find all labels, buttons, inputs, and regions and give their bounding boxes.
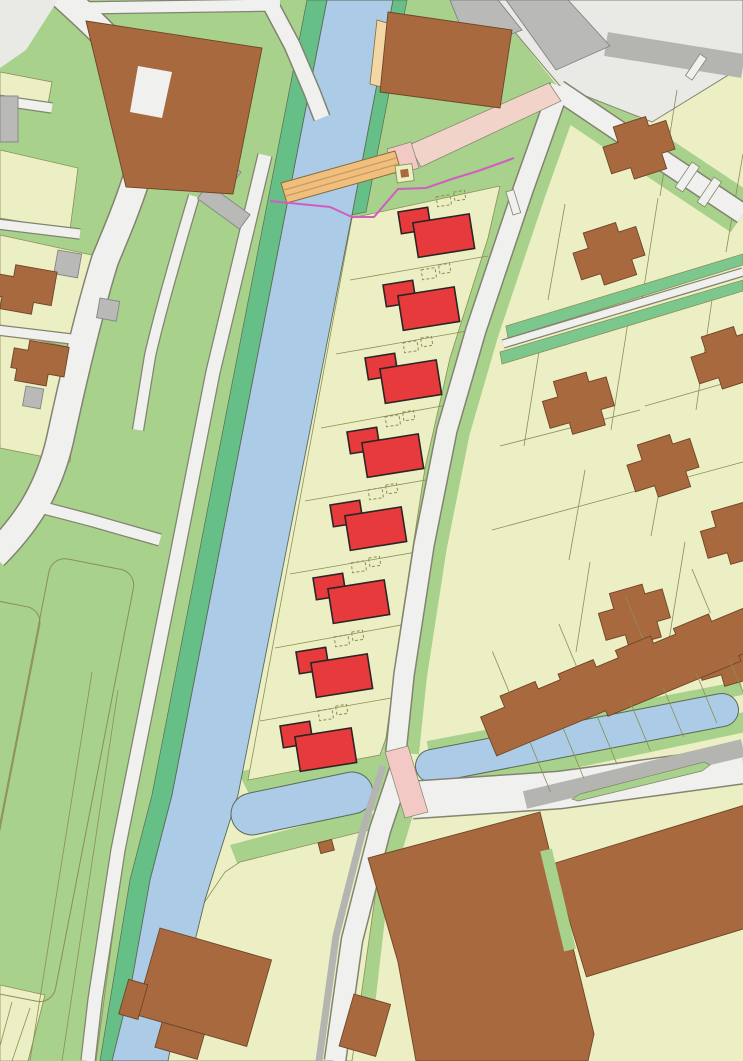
shed: [54, 250, 82, 278]
top-road: [78, 5, 280, 8]
structure-shed: [400, 169, 409, 178]
small-structure: [395, 164, 414, 183]
site-plan-map: [0, 0, 743, 1061]
gray-shed: [23, 386, 44, 409]
gray-shed: [54, 250, 82, 278]
gray-building: [0, 96, 18, 142]
shed: [97, 298, 120, 321]
map-canvas: [0, 0, 743, 1061]
shed: [23, 386, 44, 409]
water-branch-west: [252, 793, 352, 814]
gray-shed: [97, 298, 120, 321]
